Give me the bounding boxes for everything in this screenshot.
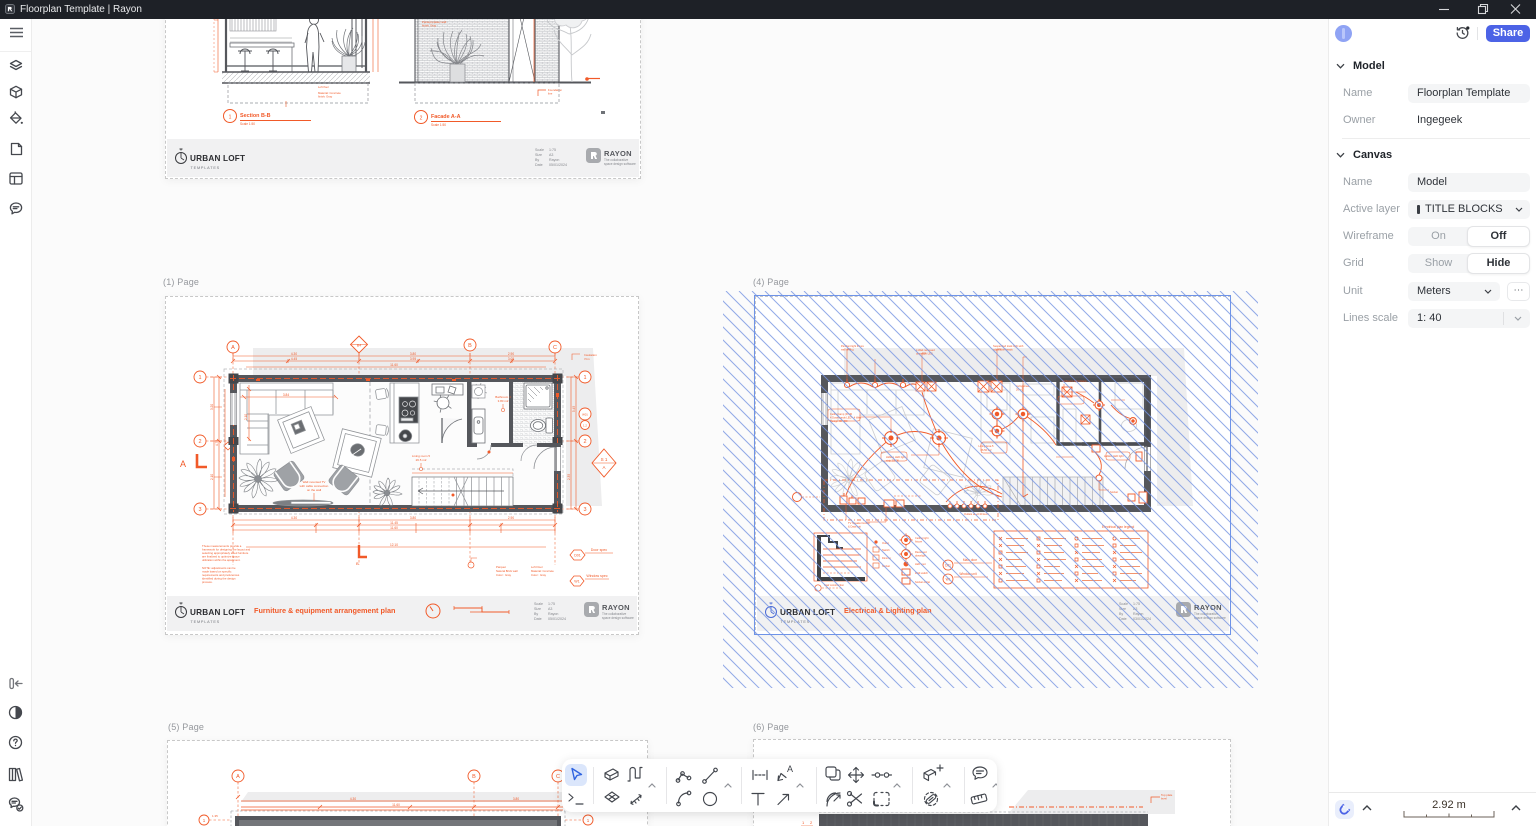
svg-text:05/01/2024: 05/01/2024 [549,163,567,167]
svg-text:Furniture & equipment arrangem: Furniture & equipment arrangement plan [254,606,396,615]
svg-text:Date: Date [534,617,542,621]
svg-text:3.20: 3.20 [210,404,214,410]
svg-text:line: line [548,91,553,95]
svg-text:utilization within the apartme: utilization within the apartment. [202,558,241,562]
svg-text:Scale: Scale [534,602,543,606]
svg-text:3.05: 3.05 [508,357,514,361]
svg-text:1.2: 1.2 [583,424,587,428]
svg-text:3.80 m2: 3.80 m2 [498,399,509,403]
svg-text:Size: Size [534,607,541,611]
svg-text:on the wall: on the wall [307,488,322,492]
svg-text:1:75: 1:75 [548,602,555,606]
svg-text:B4: B4 [357,344,361,348]
svg-text:C: C [553,345,557,351]
svg-text:By: By [535,158,539,162]
svg-text:26.5 m2: 26.5 m2 [416,458,427,462]
svg-text:A: A [236,774,240,780]
svg-text:3.84: 3.84 [283,393,289,397]
svg-text:4.30: 4.30 [350,797,356,801]
svg-text:A: A [602,465,605,470]
svg-text:3.80: 3.80 [410,352,416,356]
svg-text:4.30: 4.30 [291,516,297,520]
svg-text:2.10: 2.10 [244,414,248,420]
svg-text:finish: Gray: finish: Gray [422,23,437,27]
svg-text:finish: Gray: finish: Gray [318,94,333,98]
svg-text:Date: Date [535,163,543,167]
svg-text:TEMPLATES: TEMPLATES [191,620,221,624]
svg-text:Scale 1:50: Scale 1:50 [240,122,255,126]
svg-text:S 1: S 1 [601,457,608,462]
svg-text:Window spec: Window spec [586,574,608,578]
svg-text:11.60: 11.60 [390,526,398,530]
svg-text:Color : Gray: Color : Gray [496,573,512,577]
svg-text:2.90: 2.90 [508,516,514,520]
svg-text:2: 2 [420,116,423,122]
svg-text:1:75: 1:75 [549,148,556,152]
svg-text:RAYON: RAYON [602,603,630,612]
svg-text:D01: D01 [574,554,581,558]
svg-text:A3: A3 [549,153,553,157]
svg-text:1: 1 [583,375,586,381]
svg-text:1: 1 [198,375,201,381]
svg-text:3.80: 3.80 [410,516,416,520]
svg-text:11.60: 11.60 [392,803,400,807]
svg-text:A: A [180,459,186,469]
svg-text:2: 2 [583,439,586,445]
svg-text:3.80: 3.80 [513,797,519,801]
svg-text:B: B [468,343,472,349]
svg-text:URBAN LOFT: URBAN LOFT [190,608,245,617]
svg-text:space design software: space design software [604,162,636,166]
svg-text:1.35: 1.35 [212,814,218,818]
svg-text:level: level [1161,797,1167,801]
svg-text:3.95: 3.95 [410,357,416,361]
svg-text:3: 3 [198,507,201,513]
svg-text:2: 2 [198,439,201,445]
svg-text:Color : Gray: Color : Gray [531,573,547,577]
svg-text:7cm: 7cm [584,357,590,361]
svg-text:3: 3 [583,507,586,513]
svg-text:W1: W1 [574,580,579,584]
svg-text:4.70: 4.70 [215,440,219,446]
svg-text:2: 2 [810,820,813,825]
svg-text:B: B [472,774,476,780]
svg-text:URBAN LOFT: URBAN LOFT [190,154,245,163]
svg-text:11.45: 11.45 [390,521,398,525]
svg-text:RAYON: RAYON [604,149,632,158]
svg-text:11.60: 11.60 [390,363,398,367]
svg-text:Size: Size [535,153,542,157]
svg-text:A: A [231,345,235,351]
svg-text:Section B-B: Section B-B [240,113,271,119]
svg-text:5.45: 5.45 [572,406,576,412]
svg-text:2.35: 2.35 [567,474,571,480]
svg-text:05/01/2024: 05/01/2024 [548,617,566,621]
svg-text:1: 1 [229,115,232,121]
svg-text:2.90: 2.90 [508,352,514,356]
svg-text:Rayon: Rayon [548,612,558,616]
svg-text:A: A [787,764,793,774]
svg-text:Facade A-A: Facade A-A [431,114,461,120]
svg-text:process.: process. [202,580,213,584]
svg-text:C: C [556,774,560,780]
svg-text:Scale 1:50: Scale 1:50 [431,123,446,127]
svg-text:1: 1 [802,820,805,825]
svg-text:TEMPLATES: TEMPLATES [191,166,221,170]
svg-text:4.30: 4.30 [291,352,297,356]
svg-text:4.45: 4.45 [291,357,297,361]
svg-text:A3: A3 [548,607,552,611]
svg-text:space design software: space design software [602,616,634,620]
svg-text:Rayon: Rayon [549,158,559,162]
svg-text:2.10: 2.10 [210,474,214,480]
svg-text:12.10: 12.10 [390,543,398,547]
svg-text:Loft floor: Loft floor [318,85,329,89]
svg-text:Door spec: Door spec [591,548,608,552]
svg-text:Scale: Scale [535,148,544,152]
svg-text:B: B [356,561,359,566]
svg-text:By: By [534,612,538,616]
svg-text:W01: W01 [582,413,588,417]
